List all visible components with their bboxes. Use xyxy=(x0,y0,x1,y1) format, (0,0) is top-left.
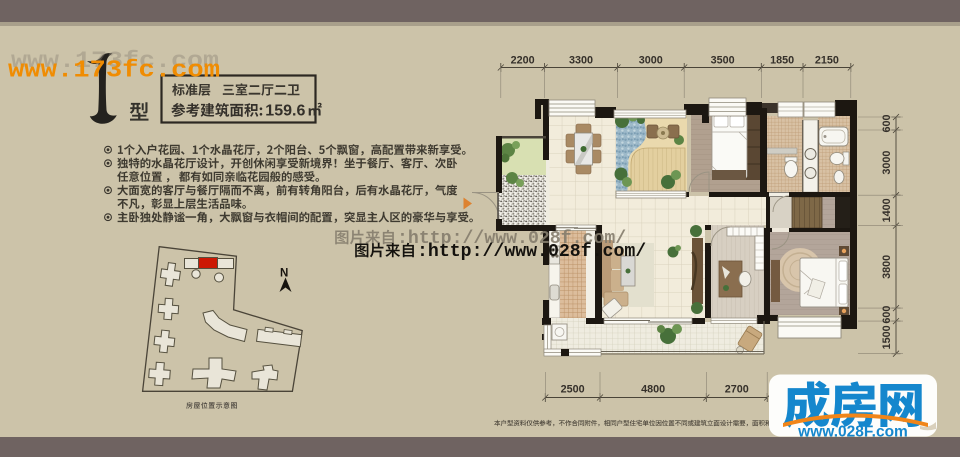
svg-text:3500: 3500 xyxy=(711,55,735,67)
svg-text:4800: 4800 xyxy=(641,384,665,396)
svg-text:2150: 2150 xyxy=(815,55,839,67)
svg-text:www.028F.com: www.028F.com xyxy=(797,424,908,441)
svg-text:2200: 2200 xyxy=(511,55,535,67)
svg-text:3000: 3000 xyxy=(639,55,663,67)
svg-text:1850: 1850 xyxy=(770,55,794,67)
svg-text:159.6: 159.6 xyxy=(265,103,305,120)
svg-text:3300: 3300 xyxy=(569,55,593,67)
svg-text:3000: 3000 xyxy=(881,151,893,175)
svg-text:600: 600 xyxy=(881,114,893,132)
svg-text::http://www.028f.com/: :http://www.028f.com/ xyxy=(417,242,646,262)
svg-text:2700: 2700 xyxy=(725,384,749,396)
svg-text:N: N xyxy=(280,268,288,280)
svg-text:1400: 1400 xyxy=(881,198,893,222)
svg-text:3800: 3800 xyxy=(881,255,893,279)
svg-text:2500: 2500 xyxy=(561,384,585,396)
svg-text:www.173fc.com: www.173fc.com xyxy=(8,58,220,85)
svg-text:600: 600 xyxy=(881,306,893,324)
svg-text:1500: 1500 xyxy=(881,325,893,349)
